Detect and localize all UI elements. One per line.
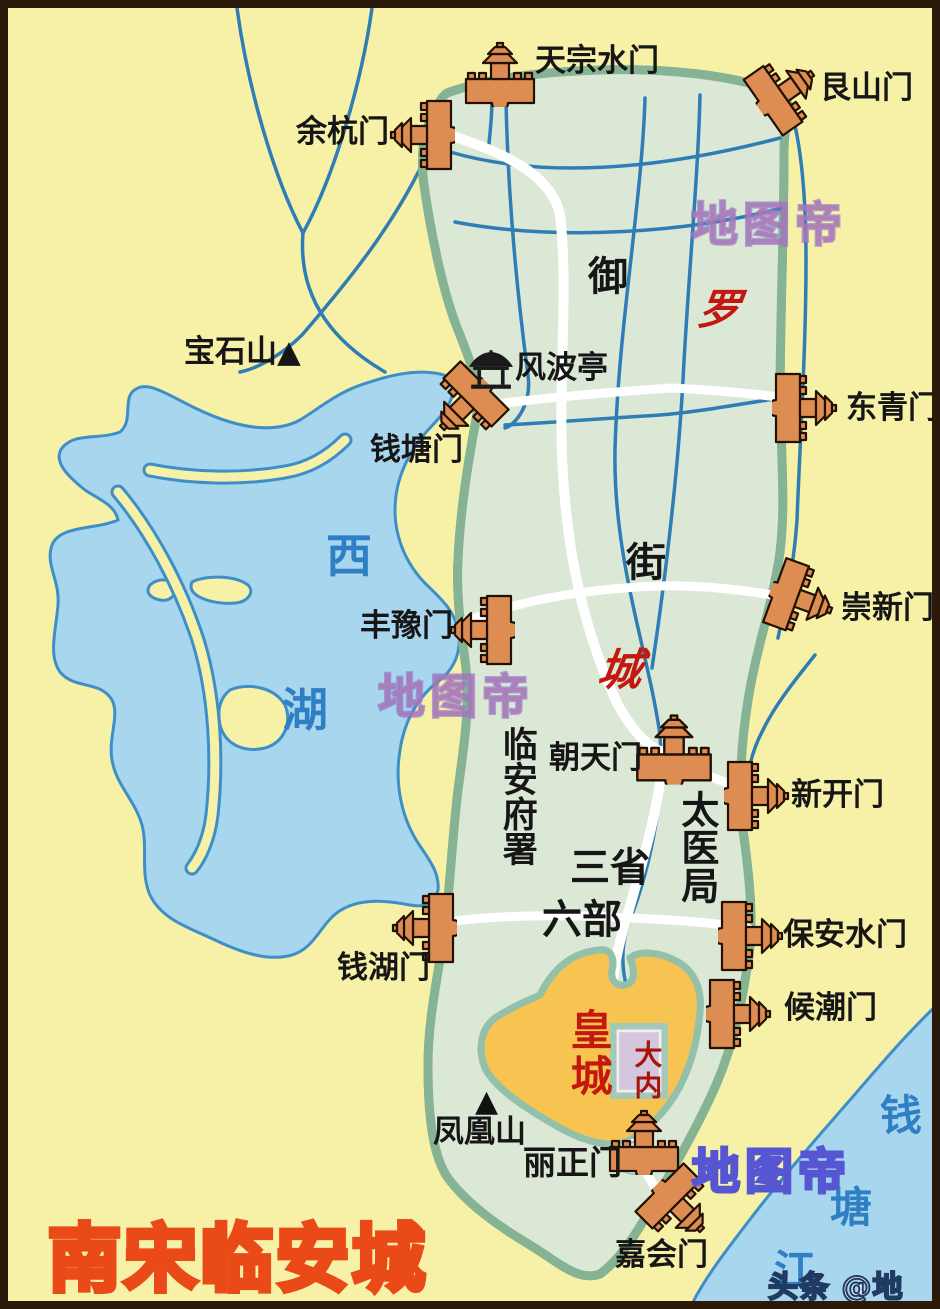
gate-label-fengyumen: 丰豫门 [360, 610, 453, 643]
label-liubu: 六部 [542, 894, 650, 946]
watermark-ditudi-bottom: 地图帝 [692, 1132, 851, 1202]
label-taiyiju: 太医局 [676, 790, 716, 904]
label-luocheng-cheng: 城 [595, 648, 645, 694]
baoshishan-name: 宝石山 [184, 334, 277, 370]
label-sansheng-liubu: 三省 六部 [542, 842, 650, 946]
gate-label-tianzongshuimen: 天宗水门 [535, 45, 659, 78]
label-linanfushu: 临安府署 [498, 726, 535, 866]
gate-label-jiahuimen: 嘉会门 [615, 1239, 708, 1272]
label-westlake-hu: 湖 [282, 686, 328, 734]
label-huangcheng: 皇城 [566, 1008, 610, 1100]
label-westlake-xi: 西 [326, 532, 372, 580]
label-sansheng: 三省 [542, 842, 650, 894]
gate-label-yuhangmen: 余杭门 [296, 116, 389, 149]
gate-label-xinkaimen: 新开门 [791, 779, 884, 812]
gate-icon-houchaomen [706, 976, 772, 1052]
gate-icon-xinkaimen [724, 758, 790, 834]
gate-icon-chaotianmen [633, 713, 715, 784]
label-fenghuangshan: 凤凰山 [433, 1116, 526, 1149]
pavilion-icon [468, 350, 514, 392]
gate-icon-tianzongshuimen [462, 41, 538, 107]
label-imperial-street-yu: 御 [588, 256, 628, 298]
gate-label-baoanshuimen: 保安水门 [783, 919, 907, 952]
gate-icon-baoanshuimen [718, 898, 784, 974]
label-fengboting: 风波亭 [515, 352, 608, 385]
mountain-peak-icon: ▲ [277, 334, 301, 370]
gate-label-dongqingmen: 东青门 [846, 392, 939, 425]
label-river-qian: 钱 [880, 1094, 922, 1138]
gate-label-chongxinmen: 崇新门 [841, 592, 934, 625]
label-imperial-street-jie: 街 [626, 542, 666, 584]
gate-icon-fengyumen [449, 592, 515, 668]
linan-city-map: 天宗水门 艮山门 余杭门 钱塘门 东青门 丰豫门 崇新门 朝天门 新开门 保安水… [0, 0, 940, 1309]
gate-label-houchaomen: 候潮门 [784, 992, 877, 1025]
gate-label-chaotianmen: 朝天门 [549, 742, 642, 775]
gate-label-genshanmen: 艮山门 [820, 72, 913, 105]
gate-label-lizhengmen: 丽正门 [523, 1146, 622, 1181]
watermark-ditudi-middle: 地图帝 [378, 658, 534, 727]
map-title: 南宋临安城 [48, 1200, 428, 1306]
gate-icon-dongqingmen [772, 370, 838, 446]
label-danei: 大内 [632, 1040, 661, 1102]
label-luocheng-luo: 罗 [695, 288, 743, 332]
gate-label-qianhumen: 钱湖门 [337, 952, 430, 985]
gate-label-qiantangmen: 钱塘门 [370, 434, 463, 467]
watermark-ditudi-top: 地图帝 [691, 186, 847, 255]
credit-toutiao-ditudi: 头条 @地图帝 [768, 1262, 932, 1309]
label-baoshishan: 宝石山▲ [184, 336, 301, 369]
gate-icon-yuhangmen [389, 97, 455, 173]
